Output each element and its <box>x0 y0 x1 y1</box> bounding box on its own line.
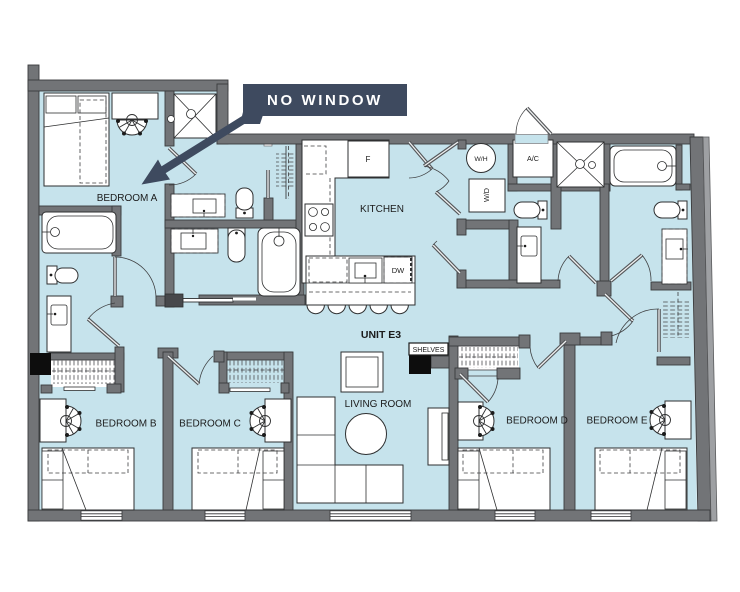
svg-text:NO WINDOW: NO WINDOW <box>267 92 383 109</box>
svg-text:SHELVES: SHELVES <box>413 347 445 354</box>
svg-text:BEDROOM E: BEDROOM E <box>586 416 647 427</box>
svg-text:W/H: W/H <box>474 156 487 163</box>
svg-text:BEDROOM D: BEDROOM D <box>506 416 568 427</box>
svg-text:BEDROOM A: BEDROOM A <box>97 193 158 204</box>
svg-text:LIVING ROOM: LIVING ROOM <box>345 399 412 410</box>
svg-text:F: F <box>366 155 371 164</box>
svg-text:A/C: A/C <box>527 154 539 163</box>
svg-text:DW: DW <box>392 266 405 275</box>
svg-text:BEDROOM B: BEDROOM B <box>95 419 156 430</box>
svg-text:UNIT E3: UNIT E3 <box>361 329 401 341</box>
svg-text:KITCHEN: KITCHEN <box>360 204 404 215</box>
svg-text:W/D: W/D <box>482 188 491 202</box>
svg-text:BEDROOM C: BEDROOM C <box>179 419 241 430</box>
